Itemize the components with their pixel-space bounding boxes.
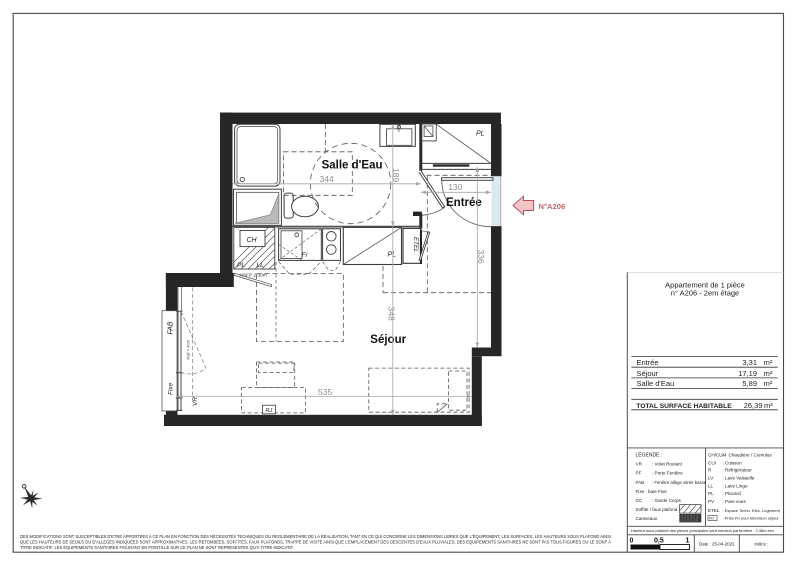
svg-text:189: 189 (391, 168, 401, 182)
svg-text:Entrée: Entrée (637, 358, 659, 367)
svg-text:PL: PL (708, 491, 714, 496)
svg-text:ETEL: ETEL (412, 237, 419, 253)
svg-text:PL: PL (237, 262, 245, 269)
svg-text:HSFP 2,30m: HSFP 2,30m (240, 273, 267, 279)
svg-text:vtail = 4cm: vtail = 4cm (186, 339, 191, 360)
svg-text:LL: LL (257, 262, 265, 269)
svg-text:: Fenêtre allège vitrée basse: : Fenêtre allège vitrée basse (652, 480, 707, 485)
svg-text:Entrée: Entrée (446, 197, 482, 209)
svg-text:0: 0 (630, 538, 634, 545)
svg-text:RJ: RJ (266, 408, 273, 414)
svg-text:Caniveaux: Caniveaux (636, 516, 658, 521)
svg-text:VR: VR (192, 397, 199, 406)
svg-text:Séjour: Séjour (637, 369, 659, 378)
svg-text:: Lave Linge: : Lave Linge (723, 483, 748, 488)
svg-text:PV: PV (708, 499, 715, 504)
svg-text:Chaudière / Cumulus: Chaudière / Cumulus (729, 452, 773, 457)
svg-text:: Garde Corps: : Garde Corps (652, 498, 682, 503)
svg-text:344: 344 (320, 174, 334, 184)
svg-text:: Lave Vaisselle: : Lave Vaisselle (723, 475, 755, 480)
svg-text:PL: PL (476, 131, 485, 138)
svg-text:Date : 25-04-2022: Date : 25-04-2022 (699, 542, 735, 547)
svg-text:: Cuisson: : Cuisson (723, 460, 743, 465)
svg-text:Soffite / faux plafond: Soffite / faux plafond (636, 507, 678, 512)
svg-text:LL: LL (708, 483, 714, 488)
svg-text:Hauteur sous plafond des pièce: Hauteur sous plafond des pièces principa… (631, 528, 775, 533)
svg-text:Indice :: Indice : (754, 542, 768, 547)
svg-text:CUI: CUI (708, 460, 716, 465)
svg-text:17,19: 17,19 (738, 369, 757, 378)
svg-text:1: 1 (686, 538, 690, 545)
svg-text:n° A206 - 2em étage: n° A206 - 2em étage (671, 289, 739, 298)
svg-text:PL: PL (388, 252, 397, 259)
svg-text:: Réfrigérateur: : Réfrigérateur (723, 468, 753, 473)
svg-text:N°A206: N°A206 (539, 202, 566, 211)
svg-text:Salle d'Eau: Salle d'Eau (322, 160, 383, 172)
svg-text:130: 130 (448, 182, 462, 192)
svg-text:336: 336 (476, 250, 486, 264)
svg-text:GC: GC (636, 498, 644, 503)
svg-text:QUE LES HAUTEURS DE SEUILS OU: QUE LES HAUTEURS DE SEUILS OU D'ALLEGES … (20, 539, 611, 544)
svg-text:TOTAL SURFACE HABITABLE: TOTAL SURFACE HABITABLE (636, 403, 732, 410)
svg-text:: Volet Roulant: : Volet Roulant (652, 461, 683, 466)
svg-text:Salle d'Eau: Salle d'Eau (637, 379, 675, 388)
svg-text:5,89: 5,89 (742, 379, 757, 388)
svg-text:m²: m² (764, 401, 773, 410)
svg-text:Séjour: Séjour (370, 334, 406, 346)
svg-text:535: 535 (318, 387, 332, 397)
svg-text:TITRE INDICATIF. LES ÉQUIPEMEN: TITRE INDICATIF. LES ÉQUIPEMENTS SANITAI… (20, 545, 294, 550)
svg-text:FAB: FAB (636, 480, 645, 485)
svg-text:3,31: 3,31 (742, 358, 757, 367)
svg-text:: Pare vues: : Pare vues (723, 499, 747, 504)
svg-text:348: 348 (387, 307, 397, 321)
svg-text:PF: PF (636, 470, 642, 475)
svg-text:m²: m² (764, 358, 773, 367)
svg-text:m²: m² (764, 369, 773, 378)
svg-text:: Prise RJ pour télévision séj: : Prise RJ pour télévision séjour (723, 516, 780, 521)
svg-text:Fixe : baie Fixe: Fixe : baie Fixe (636, 489, 668, 494)
svg-text:: Espace Techn. Elec. Logement: : Espace Techn. Elec. Logement (723, 508, 781, 513)
svg-text:: Placard: : Placard (723, 491, 742, 496)
svg-text:FAB: FAB (168, 321, 175, 334)
svg-text:: Porte Fenêtre: : Porte Fenêtre (652, 470, 683, 475)
svg-text:0,5: 0,5 (654, 538, 664, 545)
svg-text:26,39: 26,39 (744, 401, 763, 410)
svg-text:Fixe: Fixe (168, 382, 175, 395)
svg-text:CH: CH (247, 237, 258, 244)
svg-text:RJ: RJ (709, 517, 714, 521)
svg-text:Fr: Fr (302, 252, 309, 259)
svg-text:CH/CUM: CH/CUM (708, 452, 727, 457)
svg-text:m²: m² (764, 379, 773, 388)
svg-text:VR: VR (636, 461, 643, 466)
svg-text:LÉGENDE :: LÉGENDE : (636, 451, 663, 458)
svg-text:DES MODIFICATIONS SONT SUSCEPT: DES MODIFICATIONS SONT SUSCEPTIBLES D'ET… (20, 534, 611, 539)
svg-text:ETEL: ETEL (708, 508, 720, 513)
